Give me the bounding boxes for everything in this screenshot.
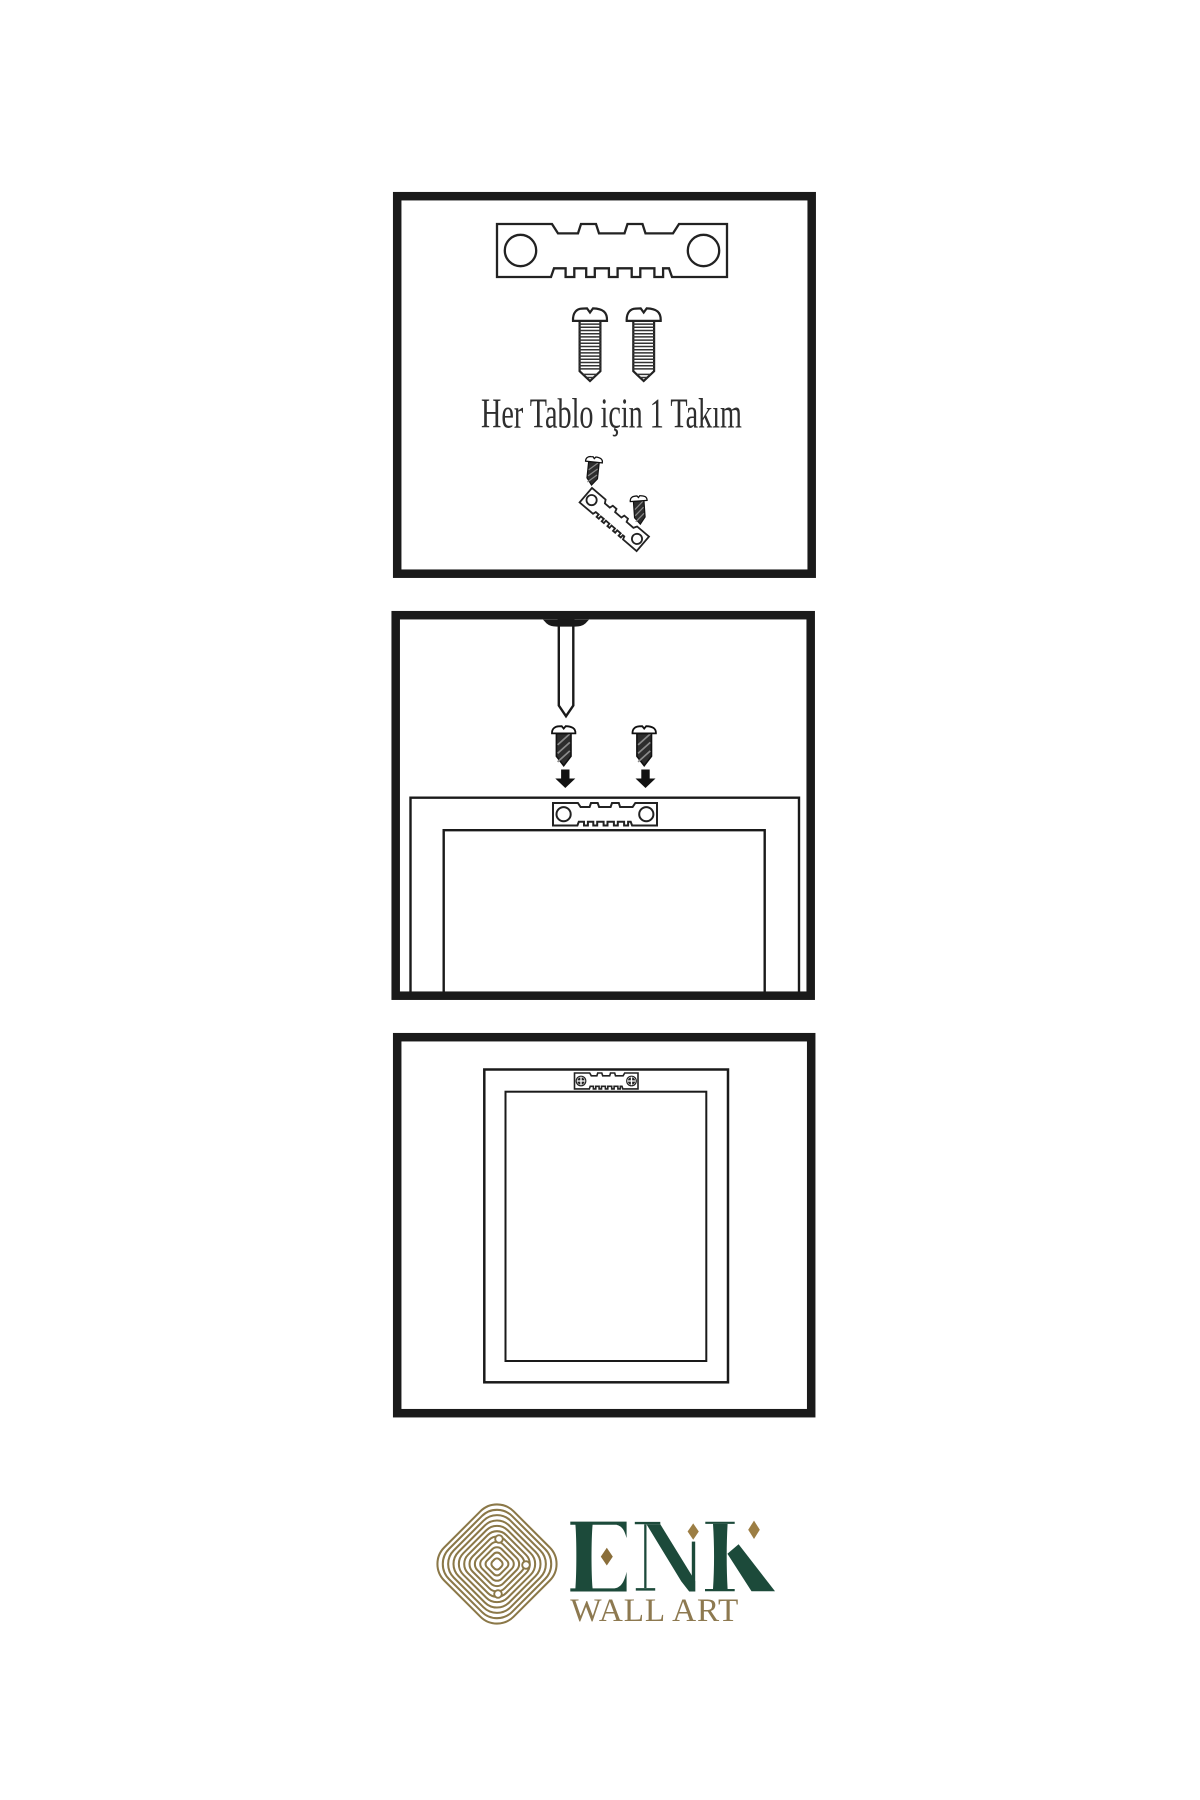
svg-text:Her Tablo için 1 Takım: Her Tablo için 1 Takım	[481, 390, 742, 437]
svg-text:WALL ART: WALL ART	[570, 1592, 738, 1629]
